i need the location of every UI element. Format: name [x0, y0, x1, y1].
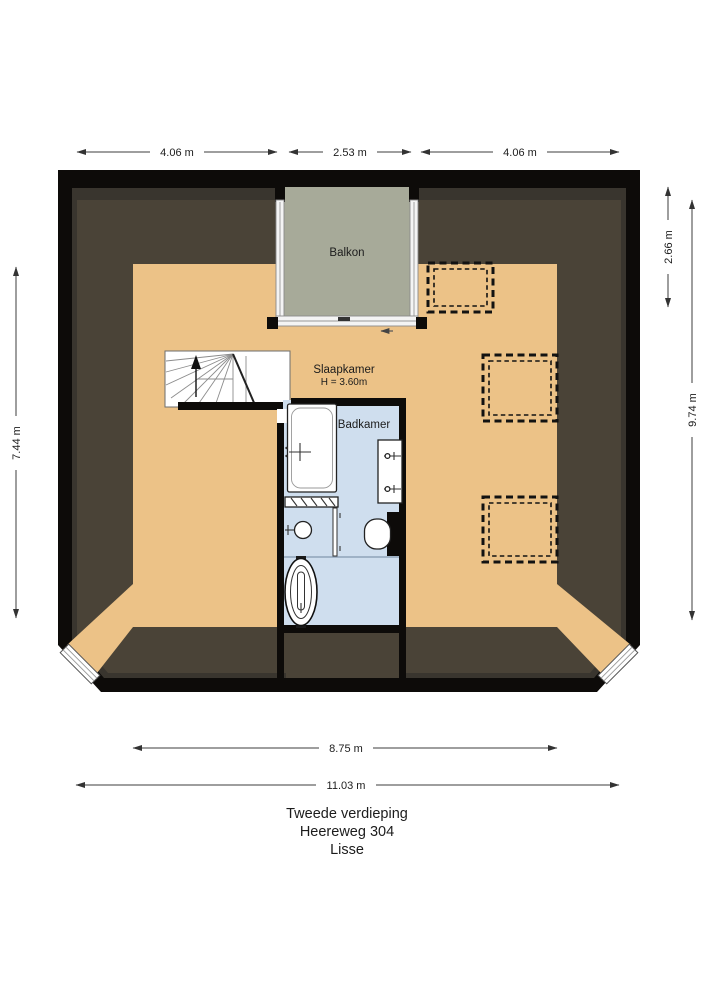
- dim-bottom-outer-label: 11.03 m: [327, 780, 366, 792]
- floorplan-canvas: 4.06 m 2.53 m 4.06 m 7.44 m 2.66 m 9.74 …: [0, 0, 707, 1000]
- balcony-wall-left: [275, 170, 285, 202]
- title-city: Lisse: [330, 842, 364, 858]
- dim-top-center-label: 2.53 m: [333, 147, 367, 159]
- oval-basin: [285, 556, 317, 628]
- balcony-wall-right: [409, 170, 419, 202]
- bedroom-label: Slaapkamer: [313, 364, 375, 376]
- staircase: [165, 351, 291, 410]
- dim-left-label: 7.44 m: [11, 426, 23, 460]
- bathroom: Badkamer: [277, 398, 406, 686]
- bedroom-height-label: H = 3.60m: [321, 377, 367, 388]
- title-block: Tweede verdieping Heereweg 304 Lisse: [286, 806, 408, 858]
- toilet: [365, 519, 391, 549]
- dim-right-inner-label: 2.66 m: [663, 230, 675, 264]
- shower-screen: [333, 508, 337, 556]
- dim-top-left-label: 4.06 m: [160, 147, 194, 159]
- bathroom-label: Badkamer: [338, 419, 391, 431]
- stair-side-wall: [178, 402, 291, 410]
- dim-top-right-label: 4.06 m: [503, 147, 537, 159]
- title-street: Heereweg 304: [300, 824, 394, 840]
- balcony-post-right: [416, 317, 427, 329]
- bathtub: [288, 404, 337, 492]
- balcony: Balkon: [267, 170, 427, 331]
- dim-bottom-inner-label: 8.75 m: [329, 743, 363, 755]
- bathroom-wall-left: [277, 422, 284, 686]
- balcony-post-left: [267, 317, 278, 329]
- dim-right-outer-label: 9.74 m: [687, 393, 699, 427]
- radiator: [285, 497, 338, 507]
- floorplan-page: 4.06 m 2.53 m 4.06 m 7.44 m 2.66 m 9.74 …: [0, 0, 707, 1000]
- title-floor: Tweede verdieping: [286, 806, 408, 822]
- door-handle: [338, 317, 350, 321]
- vanity: [378, 440, 402, 503]
- under-eave-strip: [286, 633, 399, 678]
- balcony-label: Balkon: [329, 247, 364, 259]
